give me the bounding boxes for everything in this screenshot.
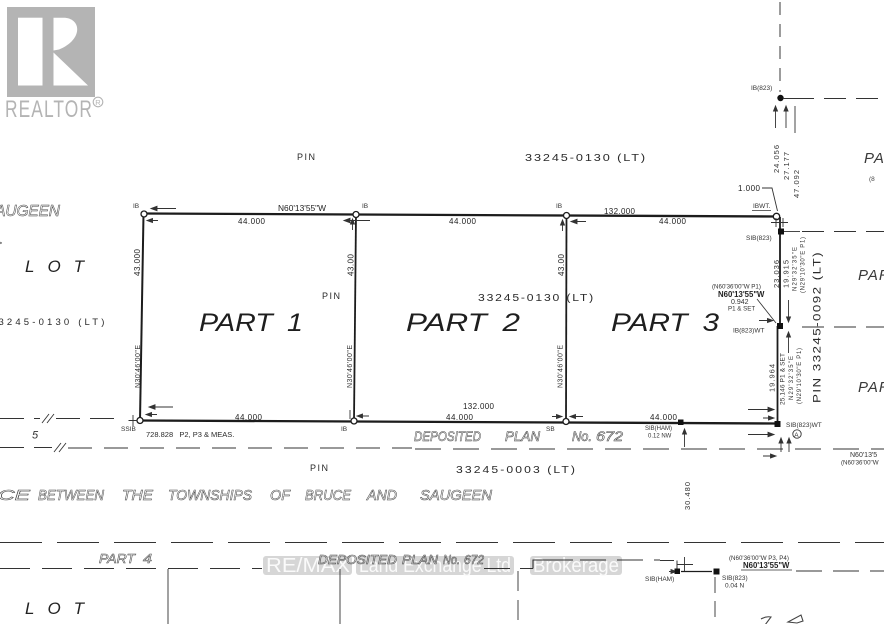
svg-text:44.000: 44.000 [446,413,474,422]
svg-text:A: A [794,432,799,439]
svg-text:THE: THE [122,488,153,504]
svg-text:33245-0130 (LT): 33245-0130 (LT) [525,153,647,164]
svg-text:33245-0130 (LT): 33245-0130 (LT) [0,317,106,328]
svg-text:PIN 33245-0092 (LT): PIN 33245-0092 (LT) [812,251,824,403]
svg-text:5: 5 [32,430,39,442]
svg-text:672: 672 [464,552,485,567]
svg-text:BETWEEN: BETWEEN [38,488,104,504]
svg-text:PART: PART [99,551,136,566]
svg-text:43.00: 43.00 [347,253,356,276]
svg-text:43.000: 43.000 [133,248,142,276]
svg-text:SIB(823): SIB(823) [722,575,748,582]
svg-text:PIN: PIN [322,291,342,301]
svg-text:PLAN: PLAN [402,552,439,567]
svg-text:Brokerage: Brokerage [533,555,619,577]
svg-text:AND: AND [366,488,397,504]
svg-text:N60'13'55"W: N60'13'55"W [718,290,765,299]
svg-text:1.000: 1.000 [738,184,761,193]
svg-text:IB: IB [362,203,368,210]
svg-text:TOWNSHIPS: TOWNSHIPS [168,488,252,504]
svg-text:SSIB: SSIB [121,426,136,433]
svg-text:44.000: 44.000 [650,413,678,422]
svg-text:SIB(823): SIB(823) [746,235,772,242]
svg-text:N30'46'00"E: N30'46'00"E [347,345,354,388]
svg-text:44.000: 44.000 [659,217,687,226]
svg-text:23.036: 23.036 [772,260,781,288]
svg-text:IB: IB [556,203,562,210]
svg-text:P1 & SET: P1 & SET [728,306,755,313]
svg-text:DEPOSITED: DEPOSITED [318,552,397,567]
svg-text:R: R [95,98,101,107]
svg-text:PIN: PIN [297,152,317,162]
svg-text:No.: No. [572,429,592,444]
svg-text:47.092: 47.092 [792,170,801,198]
svg-text:LOT: LOT [25,599,97,618]
svg-text:44.000: 44.000 [449,217,477,226]
svg-text:PAR: PAR [858,267,884,284]
svg-text:33245-0003 (LT): 33245-0003 (LT) [456,464,577,476]
svg-text:N29'32'35"E: N29'32'35"E [793,247,799,291]
svg-text:0.04 N: 0.04 N [725,583,744,590]
svg-text:(8: (8 [869,176,875,183]
svg-text:N60'13'55"W: N60'13'55"W [743,561,790,570]
svg-text:SAUGEEN: SAUGEEN [420,488,493,504]
svg-text:REALTOR: REALTOR [5,96,93,123]
svg-text:N60'13'5: N60'13'5 [850,452,877,459]
svg-text:(N60'36'00"W: (N60'36'00"W [841,460,879,467]
svg-text:N30'46'00"E: N30'46'00"E [135,345,142,388]
svg-text:(N29'10'30"E P1): (N29'10'30"E P1) [801,237,807,293]
svg-text:4: 4 [143,551,152,566]
svg-text:43.00: 43.00 [557,253,566,276]
svg-text:CE: CE [0,488,31,504]
svg-text:0.12 NW: 0.12 NW [648,434,672,440]
svg-text:>: > [0,238,2,248]
svg-text:25.146 P1 & SET: 25.146 P1 & SET [780,353,787,405]
svg-text:PIN: PIN [310,463,330,473]
svg-text:30.480: 30.480 [683,482,692,510]
svg-text:SB: SB [546,426,555,433]
svg-text:PART 2: PART 2 [406,309,520,337]
svg-text:PLAN: PLAN [505,429,540,444]
svg-text:IB(823): IB(823) [751,85,772,92]
svg-text:LOT: LOT [25,257,97,276]
svg-text:DEPOSITED: DEPOSITED [414,429,481,444]
svg-text:SIB(HAM): SIB(HAM) [645,576,674,583]
svg-text:N60'13'55"W: N60'13'55"W [278,204,326,213]
svg-text:672: 672 [596,429,624,444]
svg-text:BRUCE: BRUCE [305,488,351,504]
svg-text:27.177: 27.177 [782,152,791,180]
svg-text:N29'32'35"E: N29'32'35"E [789,356,795,400]
svg-text:(N29'10'30"E P1): (N29'10'30"E P1) [797,348,803,404]
svg-text:44.000: 44.000 [238,217,266,226]
svg-text:132.000: 132.000 [463,402,495,411]
svg-text:N30'46'00"E: N30'46'00"E [558,345,565,388]
svg-text:OF: OF [270,488,291,504]
svg-text:PAR: PAR [858,379,884,396]
svg-text:44.000: 44.000 [235,413,263,422]
svg-text:19.915: 19.915 [782,260,791,288]
svg-text:SIB(823)WT: SIB(823)WT [786,422,822,429]
svg-text:PART 1: PART 1 [199,309,303,337]
svg-text:IB: IB [133,203,139,210]
svg-text:IB(823)WT: IB(823)WT [733,328,764,335]
svg-text:19.964: 19.964 [768,364,777,392]
svg-text:33245-0130 (LT): 33245-0130 (LT) [478,293,595,304]
svg-text:IB: IB [341,426,347,433]
svg-text:728.828 P2, P3 & MEAS.: 728.828 P2, P3 & MEAS. [146,430,234,439]
svg-text:PA: PA [864,150,884,167]
svg-text:SAUGEEN: SAUGEEN [0,203,62,220]
svg-text:PART 3: PART 3 [611,309,719,337]
svg-text:24.056: 24.056 [772,145,781,173]
svg-text:SIB(HAM): SIB(HAM) [645,426,672,432]
svg-text:IBWT.: IBWT. [753,203,771,210]
svg-text:132.000: 132.000 [604,207,636,216]
svg-text:No.: No. [443,552,460,567]
